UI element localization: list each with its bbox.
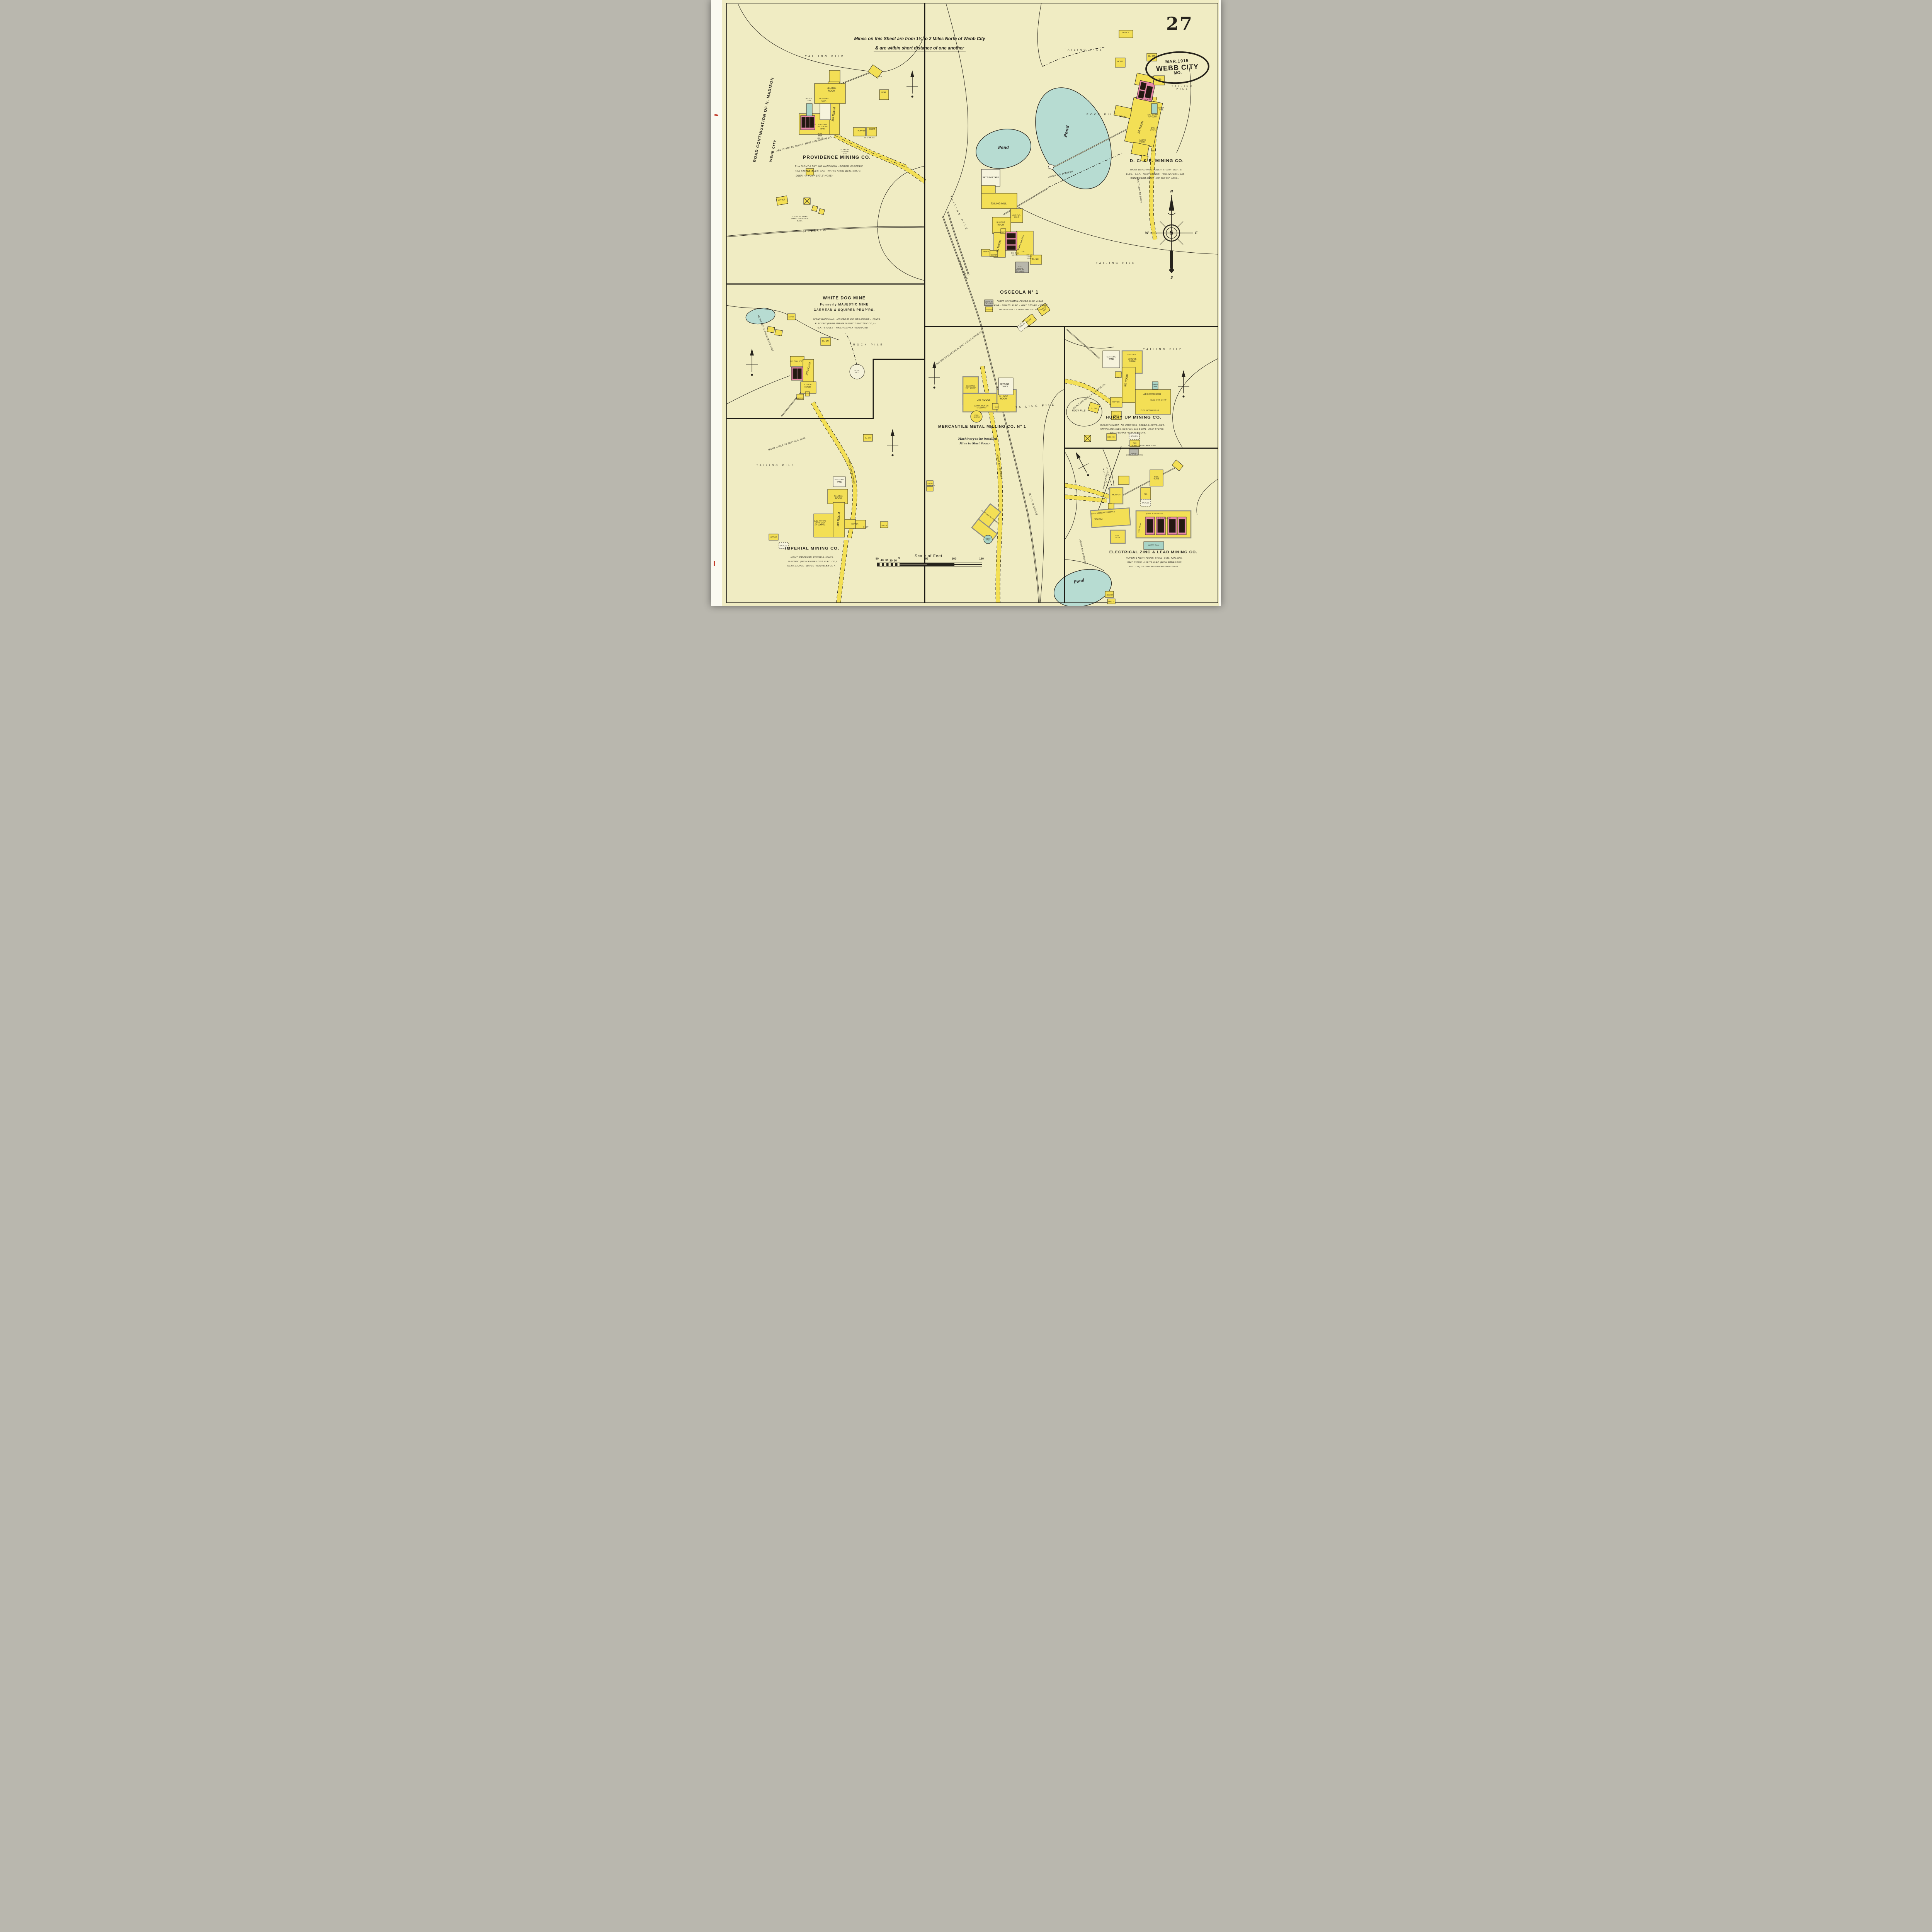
map-label-imp-jig: JIG ROOM — [837, 512, 841, 527]
map-label-osc-d2: ENG. - LIGHTS: ELEC. - HEAT: STOVES - WA… — [994, 304, 1048, 307]
map-label-ez-hopper: HOPPER — [1112, 494, 1120, 497]
map-label-hu-d2: (EMPIRE DIST. ELEC. CO.) FUEL GAS & COAL… — [1100, 429, 1165, 431]
map-label-wd-d1: NIGHT WATCHMAN. - POWER 85 H.P. GAS ENGI… — [813, 318, 881, 321]
map-label-hu-d1: RUN DAY & NIGHT - NO WATCHMAN - POWER & … — [1100, 425, 1165, 427]
stamp-state: MO. — [1173, 71, 1182, 76]
map-label-osc-hose: 100' 1½" LOOSE HOSE — [1026, 254, 1032, 260]
map-label-wd-blsm: BL. SM. — [822, 340, 829, 343]
map-label-hu-d3: WATER SUPPLY FROM WEBB CITY.- — [1110, 432, 1146, 435]
scale-tick: 100 — [952, 558, 956, 560]
map-label-osc-scales: SCALES — [1019, 322, 1025, 328]
map-label-dce-engdyn: ENG. & DYNAMO — [1150, 127, 1158, 131]
map-label-osc-sludge: SLUDGE ROOM — [997, 222, 1005, 227]
map-label-prov-rr: ST. L. & S. F. R. R. — [803, 229, 827, 233]
map-label-wd-rock: ROCK PILE — [853, 344, 884, 347]
map-label-wd-gaseng: GAS ENG. DEP'T. — [790, 360, 804, 362]
map-label-osc-d1: NIGHT WATCHMAN; POWER ELEC. & GAS — [997, 300, 1043, 303]
map-label-osc-fp: F.P. — [1022, 250, 1024, 252]
map-label-hu-rock: ROCK PILE — [1072, 410, 1086, 412]
scale-segment-3 — [954, 563, 982, 566]
map-label-hu-elev: ELEV. — [1115, 377, 1119, 379]
map-label-osc-tailing-left: TAILING PILE — [949, 196, 968, 232]
map-label-wd-d2: ELECTRIC (FROM EMPIRE DISTRICT ELECTRIC … — [815, 323, 876, 325]
map-label-ez-corr2: (CORR. IR. ON STUD'G) — [1146, 513, 1163, 515]
map-label-mer-400: ABOUT 400' BETWEEN — [996, 454, 1003, 480]
map-label-mer-sludge: SLUDGE ROOM — [999, 396, 1008, 401]
map-label-dce-title: D. C. & E. MINING CO. — [1130, 159, 1184, 164]
map-label-hu-wtank: WATER TANK — [1153, 384, 1158, 387]
map-label-mer-corr: (CORR. IRON ON STUDDING) — [975, 405, 989, 409]
map-label-prov-title: PROVIDENCE MINING CO. — [803, 155, 871, 160]
map-label-dce-hopper: HOPPER — [1119, 115, 1127, 118]
map-label-mer-elev: ELEV. — [995, 406, 999, 408]
map-label-ez-off: OFF. — [1144, 493, 1148, 495]
map-label-imp-settling: SETTLING TANK — [835, 479, 844, 484]
map-label-hu-tailing: TAILING PILE — [1143, 348, 1183, 351]
map-label-prov-john-l: ABOUT 400' TO JOHN L. MINE RICE MINING C… — [776, 136, 833, 153]
map-label-mer-wtank: WATER TANK — [985, 538, 990, 541]
map-label-prov-fuel: 2 FUEL OIL TANKS (APPX) 10,000 GALS EACH… — [791, 216, 808, 222]
map-label-hu-title: HURRY UP MINING CO. — [1106, 415, 1162, 420]
map-label-prov-wtank: WATER TANK — [806, 98, 812, 102]
map-label-osc-tailmill: TAILING MILL — [991, 202, 1007, 206]
map-label-prov-office: OFFICE — [778, 199, 786, 202]
map-label-osc-dog: DOG HO. — [986, 309, 993, 311]
map-label-ez-hopper2: HOPPER — [1105, 594, 1113, 596]
sheet-note-line2: & are within short distance of one anoth… — [874, 46, 966, 51]
map-label-dce-hose: 50' 1½" HOSE — [1141, 99, 1151, 101]
map-label-prov-settling: SETTLING TANK — [819, 98, 828, 103]
compass-east-label: E — [1195, 231, 1197, 235]
map-label-prov-sludge: SLUDGE ROOM — [827, 87, 837, 93]
map-label-osc-jig: JIG ROOM — [996, 240, 1003, 253]
map-label-dce-between: ABOUT 400' BETWEEN — [1048, 171, 1073, 179]
map-label-hu-emot100: ELEC. MOTOR 100 HP — [1141, 409, 1159, 411]
map-label-imp-blsm: BL. SM. — [865, 437, 871, 439]
compass-north-label: N — [1170, 189, 1173, 193]
stage: S TAILING PILEROAD CONTINUATION OF N. MA… — [711, 0, 1221, 606]
map-label-imp-office: OFFICE — [770, 536, 777, 538]
map-label-prov-dog: DOG HO. — [806, 171, 814, 173]
map-label-dce-sludgetbl: SLUDGE TABLES — [1139, 139, 1146, 143]
map-label-osc-elecmotor: ELEC. MOTOR (CORR. IR. ON STUDS) — [1016, 266, 1024, 273]
map-label-hu-blsm: BL. SM. — [1091, 407, 1097, 409]
map-label-wd-sludge: SLUDGE ROOM — [804, 384, 812, 389]
map-label-hu-noexp: NO EXPOSURE ANY SIDE — [1128, 445, 1156, 447]
map-label-dce-hoist: HOIST — [1117, 61, 1123, 63]
map-label-dce-jig: JIG ROOM — [1138, 121, 1145, 134]
map-label-osc-gas85: GAS ENG. 85 H.P. — [1012, 214, 1021, 219]
map-label-hu-scales: SCALES — [1131, 435, 1138, 437]
map-label-mer-corr2: (CORR. IRON ON STUDDING) — [981, 510, 999, 524]
map-label-imp-tailing: TAILING PILE — [757, 464, 796, 467]
scale-tick: 0 — [898, 557, 900, 560]
map-label-osc-elev: ELEV — [1001, 231, 1006, 233]
map-label-wd-title2: Formerly MAJESTIC MINE — [820, 303, 869, 306]
map-label-wd-shaft: SHAFT — [789, 316, 794, 318]
map-label-ez-irchs: IR. CHS. 30' AB. RF. — [1158, 517, 1172, 519]
map-label-prov-eng: ENG. — [881, 92, 886, 94]
map-label-prov-hose: 50' 2" HOSE — [864, 137, 875, 139]
map-label-prov-fp: F.P. — [813, 123, 816, 125]
map-label-mer-d1: Machinery to be installed — [958, 437, 997, 440]
map-label-ez-d3: ELEC. CO.) CITY WATER & WATER FROM SHAFT… — [1129, 566, 1179, 568]
map-label-ez-elev: ELEV. — [1109, 503, 1113, 505]
map-label-prov-d2: AND STEAM - FUEL: GAS - WATER FROM WELL … — [795, 170, 861, 173]
map-label-ez-misc: MISC. W. RM. — [1154, 476, 1160, 480]
map-label-wd-d3: HEAT: STOVES - WATER SUPPLY FROM POND.- — [817, 327, 869, 329]
map-label-osc-settling: SETTLING TANK — [983, 177, 999, 179]
map-label-mer-d2: Mine to Start Soon.- — [959, 442, 990, 445]
map-labels-layer: TAILING PILEROAD CONTINUATION OF N. MADI… — [711, 0, 1221, 606]
map-label-osc-hopper: HOPPER — [990, 254, 997, 256]
map-label-hu-settling: SETTLING TANK — [1107, 356, 1116, 361]
map-label-osc-blsm: BL. SM. — [1032, 259, 1039, 261]
map-label-imp-elec: ELEC. MOTORS 100 HP EACH AIR COMPRS. — [814, 520, 826, 526]
map-label-wd-prov: ABOUT 400' TO PROVIDENCE MINE — [757, 315, 774, 352]
map-label-ez-eng125: ENG. 125 HP. — [1115, 535, 1121, 539]
map-label-mer-tailing: TAILING PILE — [1015, 403, 1056, 409]
map-label-imp-sludge: SLUDGE ROOM — [834, 495, 843, 500]
map-label-wd-jig: JIG ROOM — [806, 362, 812, 376]
map-label-ez-eng200: ENG. 200 HP — [1138, 523, 1142, 533]
map-label-imp-between: ABOUT 400' BETWEEN — [847, 460, 855, 485]
map-label-hu-600: ABOUT 600' TO D.C.& E. MINING CO. — [1073, 383, 1107, 410]
map-label-dce-office: OFFICE — [1122, 32, 1129, 34]
map-label-osc-office: OFFICE — [1026, 318, 1032, 323]
scale-fine-segment — [878, 563, 900, 566]
map-label-hu-emot150: ELEC. MOT. 150 HP — [1150, 399, 1166, 401]
scale-tick: 10 — [894, 560, 897, 562]
sanborn-sheet: S TAILING PILEROAD CONTINUATION OF N. MA… — [711, 0, 1221, 606]
compass-west-label: W — [1145, 231, 1149, 235]
map-label-imp-shaft: SHAFT — [863, 526, 869, 528]
map-label-ez-d2: HEAT: STOVES - LIGHTS: ELEC. (FROM EMPIR… — [1127, 562, 1182, 564]
map-label-dce-eng150: ENG 150 HP AIR COMP. — [1148, 114, 1158, 118]
map-label-osc-gas110: GAS ENG 110 HP. — [1011, 252, 1019, 257]
compass-south-label: S — [1170, 276, 1173, 279]
map-label-dce-d2: ELEC. - I.E.P. - HEAT: STOVES - FUEL NAT… — [1126, 173, 1186, 175]
map-label-hu-jig: JIG ROOM — [1124, 374, 1129, 388]
map-label-imp-bertha: ABOUT ¼ MILE TO BERTHA A. MINE — [767, 437, 806, 452]
map-label-hu-dog: DOG HO. — [1107, 436, 1115, 438]
scale-segment-1 — [900, 563, 927, 566]
map-label-osc-dogcorr: (CORR. IR. ON STUD'G) — [985, 301, 993, 305]
map-label-hu-off: OFF. — [1133, 442, 1137, 444]
map-label-ez-pond: Pond — [1073, 578, 1085, 585]
map-label-prov-jig: JIG ROOM — [831, 107, 836, 122]
map-label-osc-tailing-right: TAILING PILE — [1096, 262, 1136, 265]
map-label-dce-tailing2: TAILING PILE — [1172, 85, 1194, 91]
scale-tick: 20 — [889, 560, 893, 562]
map-label-imp-d1: NIGHT WATCHMAN, POWER & LIGHTS: — [791, 556, 834, 559]
map-label-prov-shaft: SHAFT — [869, 129, 875, 131]
map-label-imp-hopper: HOPPER — [851, 523, 858, 525]
map-label-mer-500: ABOUT 500' TO ELECTRICAL ZINC & LEAD MIN… — [933, 330, 983, 368]
map-label-ez-scales: SCALES — [1142, 502, 1149, 503]
map-label-osc-mprr: M. P. R. R. SIDING — [956, 257, 968, 280]
map-label-ez-wtank: WATER TANK — [1148, 544, 1160, 546]
scale-tick: 50 — [925, 558, 928, 560]
map-label-ez-jigrm: JIG RM. — [1094, 518, 1103, 521]
scale-tick: 50 — [876, 558, 879, 560]
map-label-prov-hyd: 2" HYD. 50' 2" HOSE ATTD. — [840, 148, 849, 155]
map-label-imp-d2: ELECTRIC (FROM EMPIRE DIST. ELEC. CO.) — [788, 561, 837, 563]
map-label-wd-title1: WHITE DOG MINE — [823, 296, 866, 301]
scale-segment-2 — [927, 563, 954, 566]
map-label-hu-hopper: HOPPER — [1112, 401, 1119, 403]
map-label-prov-d3: DEEP. - F. PUMP 150' 2" HOSE.- — [796, 175, 833, 177]
sheet-number: 27 — [1158, 13, 1201, 34]
map-label-wd-title3: CARMEAN & SQUIRES PROP'RS. — [814, 308, 875, 311]
map-label-hu-elecmot: ELEC. MOT — [1128, 354, 1136, 356]
map-label-prov-elecmot: ELEC. MOT. 200 HP — [817, 133, 823, 139]
map-label-ez-400: ABOUT 400' BETWEEN — [1078, 539, 1086, 565]
map-label-mer-dog: DOG HO. (CORR. IR.) — [926, 483, 935, 486]
map-label-ez-dog: DOG HO. (CORR. IR. ON STUD'G) — [1126, 453, 1143, 456]
map-label-dce-1000: ABOUT 1000' TO SHAFT — [1136, 177, 1142, 204]
map-label-wd-elev: ELEV. — [805, 393, 810, 395]
map-label-dce-rock: ROCK PILE — [1087, 113, 1117, 116]
map-label-wd-hopper: HOPPER — [796, 397, 803, 399]
sheet-note-line1: Mines on this Sheet are from 1¼ to 2 Mil… — [852, 37, 986, 42]
map-label-osc-d3: FROM POND. - F.PUMP 100' 1½" HOSE — [999, 309, 1041, 311]
map-label-prov-road-city: WEBB CITY — [769, 139, 777, 162]
map-label-pond-a: Pond — [998, 146, 1009, 150]
map-label-prov-hopper: HOPPER — [857, 130, 866, 133]
map-label-prov-d1: RUN NIGHT & DAY; NO WATCHMAN - POWER: EL… — [795, 165, 863, 168]
scale-tick: 40 — [881, 559, 884, 562]
map-label-wd-rockcircle: ROCK PILE — [854, 370, 859, 374]
map-label-dce-wtank: WATER TANK — [1158, 107, 1164, 111]
map-label-mer-title: MERCANTILE METAL MILLING CO. Nº 1 — [938, 425, 1026, 429]
map-label-dce-elev: ELEV. — [1151, 150, 1156, 151]
map-label-hu-sludge: SLUDGE ROOM — [1128, 358, 1137, 363]
map-label-ez-d1: RUN DAY & NIGHT. POWER: STEAM - FUEL: NA… — [1126, 558, 1183, 560]
map-label-imp-d3: HEAT: STOVES - WATER FROM WEBB CITY. — [787, 565, 836, 567]
map-label-osc-boilers: Boilers not Used — [1017, 235, 1025, 250]
map-label-dce-d1: NIGHT WATCHMAN; POWER: STEAM - LIGHTS: — [1130, 169, 1182, 171]
map-label-ez-incline: INCLINE TO SHAFT — [1102, 471, 1109, 489]
map-label-imp-title: IMPERIAL MINING CO. — [785, 546, 840, 551]
map-label-osc-title: OSCEOLA Nº 1 — [1000, 289, 1039, 295]
map-label-imp-dog: DOG HO. — [881, 524, 889, 526]
map-label-mer-ironhopper: IRON HOPPER — [973, 415, 980, 418]
scale-title: Scale of Feet. — [915, 554, 944, 558]
map-label-osc-shaft: SHAFT — [983, 251, 989, 253]
scale-bar — [877, 563, 982, 566]
map-label-pond-b: Pond — [1063, 125, 1070, 138]
map-label-prov-aircomp: AIR COMP. 50' 2" HOSE ATTD. — [818, 124, 827, 130]
map-label-mer-settling: SETTLING TANKS — [1000, 384, 1009, 388]
map-label-ez-corr1: (CORR. IRON ON STUDDING) — [1091, 510, 1115, 515]
map-label-prov-elev: ELEV. — [876, 76, 882, 78]
map-label-ez-shaft2: SHAFT — [1108, 600, 1114, 602]
map-label-prov-tailing: TAILING PILE — [805, 55, 845, 58]
map-label-mer-jig: JIG ROOM. — [977, 399, 990, 402]
map-label-mer-mprr: M. P. R. R. SIDING — [1028, 493, 1038, 516]
map-label-mer-emot: ELECTRIC MOT 100 HP — [966, 385, 976, 389]
map-label-ez-title: ELECTRICAL ZINC & LEAD MINING CO. — [1109, 550, 1197, 555]
scale-tick: 150 — [979, 558, 984, 560]
scale-tick: 30 — [885, 559, 888, 562]
map-label-hu-aircomp: AIR COMPRESSOR — [1143, 394, 1161, 396]
map-label-dce-tailing1: TAILING PILE — [1065, 49, 1104, 52]
